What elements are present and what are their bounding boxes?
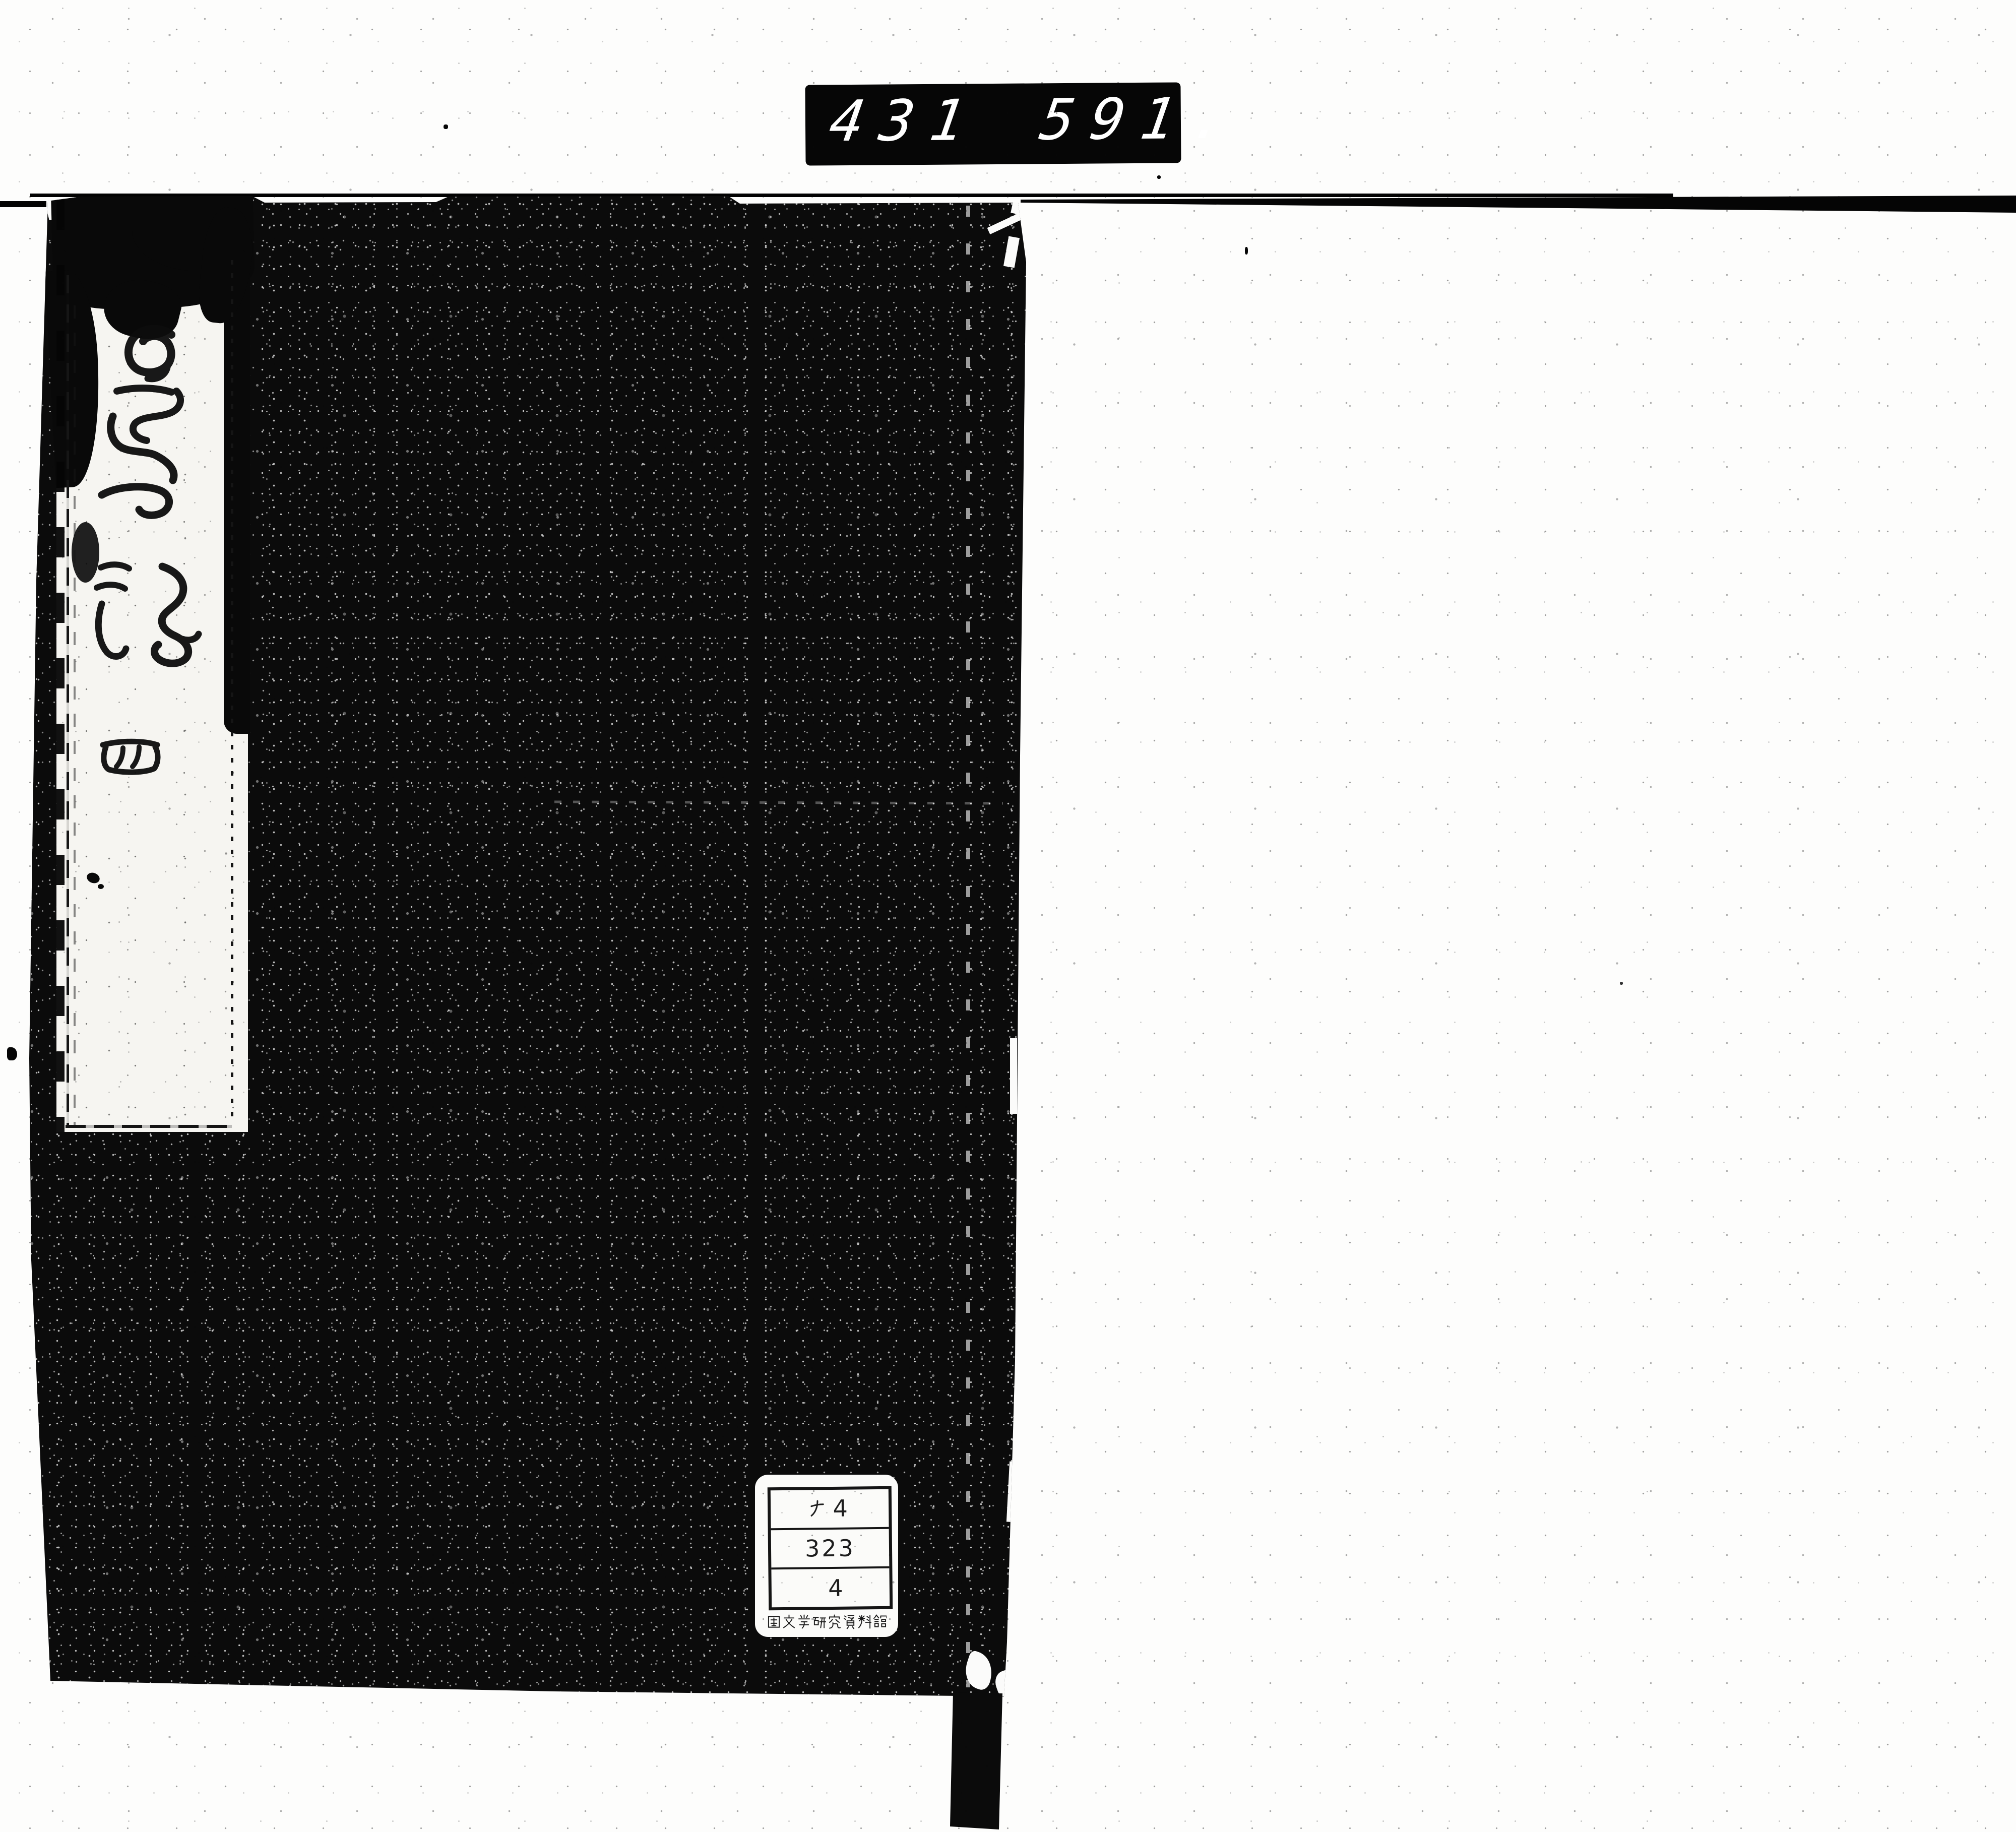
slip-edge-fringe [56,200,65,1132]
horizontal-rule [30,194,1673,197]
slip-border-bottom [66,1125,232,1128]
kanji-kyuu-glyph [828,1614,841,1630]
book-cover: の 記 四 ナ [28,191,1028,1698]
scan-speck [1620,982,1623,985]
kanji-shi-glyph [843,1614,856,1630]
kanji-bun-glyph [782,1614,796,1630]
kanji-kuni-glyph [767,1614,781,1630]
wear-mark [1010,1038,1017,1114]
shelf-number-right: 591. [1035,86,1246,160]
slip-border-left [67,275,69,1127]
scanned-page: { "page": { "background": "#fdfdfc", "wi… [0,0,2016,1832]
call-number-row-1: ナ 4 4 [771,1489,889,1528]
scan-speck [1245,247,1248,255]
call-number-row-2-digits: 323 [805,1534,855,1562]
shelf-number-left: 431 [824,88,985,161]
horizontal-rule-right-wedge [1021,176,2016,237]
call-number-row-1-digit: 4 [833,1495,850,1522]
horizontal-rule-left-segment [0,201,46,207]
shelf-number-label: 431 591. [805,82,1181,165]
call-number-row-3-digit: 4 [828,1574,845,1601]
ink-spot [98,884,104,889]
scan-speck [1157,175,1161,179]
katakana-na-glyph [809,1498,825,1519]
kanji-ken-glyph [812,1614,826,1630]
spine-tab [950,1692,1002,1829]
institution-caption: 国文学研究資料館 [762,1612,891,1632]
spine-stitch-line [966,206,970,1687]
call-number-row-3: 4 [771,1566,890,1607]
kanji-kan-glyph [873,1614,887,1630]
scan-speck [7,1047,17,1060]
slip-border-left-inner [74,305,76,1127]
call-number-row-2: 323 [771,1527,890,1567]
kanji-ryou-glyph [858,1614,871,1630]
call-number-table: ナ 4 4 323 4 [768,1486,893,1611]
slip-border-right [231,260,233,1125]
scan-speck [444,124,448,129]
title-slip: の 記 四 [56,200,248,1132]
title-calligraphy [87,315,218,784]
kanji-gaku-glyph [797,1614,811,1630]
library-label: ナ 4 4 323 4 国文学研究資料館 [755,1475,898,1637]
